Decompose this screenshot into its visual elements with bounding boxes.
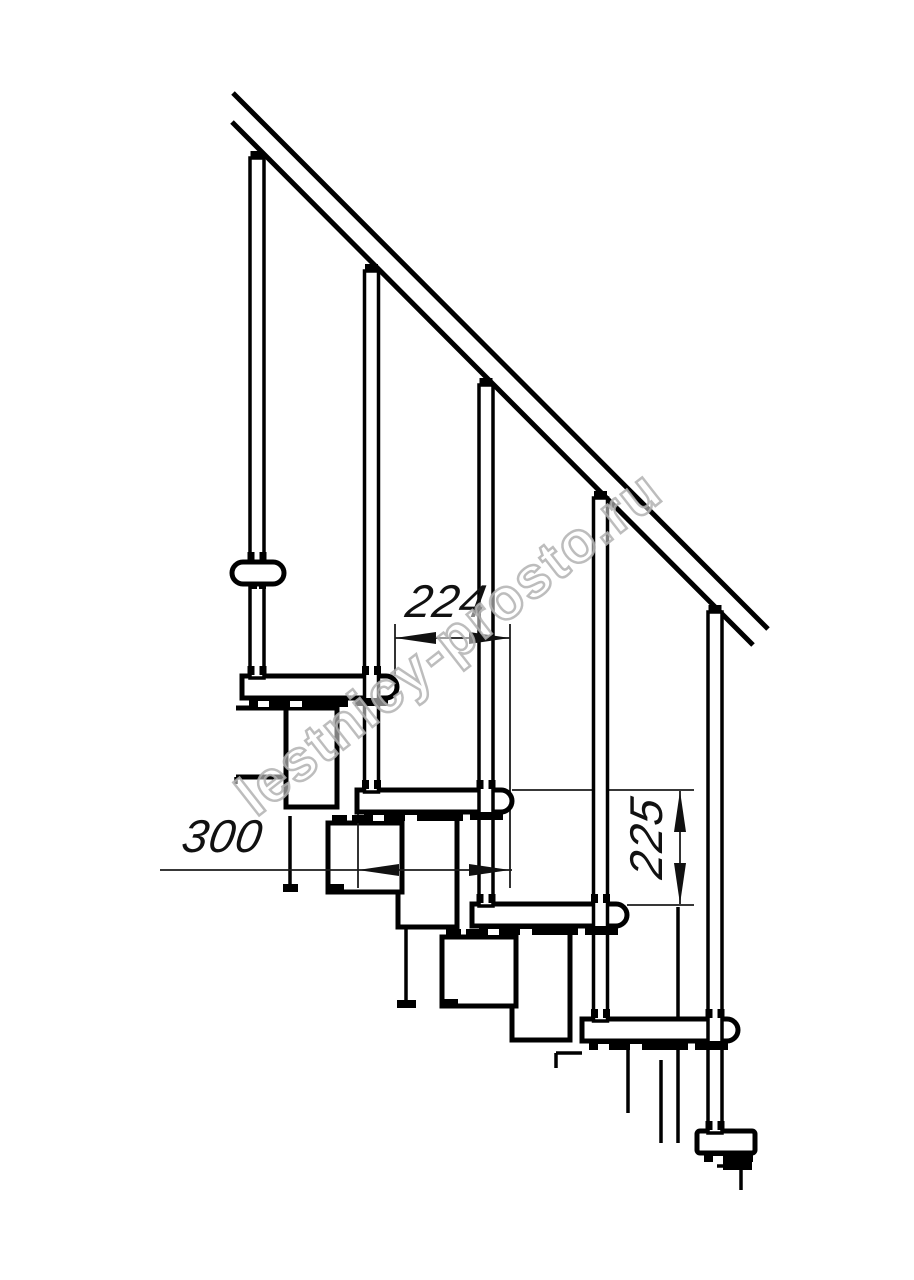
dimension-label-rise: 225 [620,793,672,883]
collar [591,894,610,903]
collar [706,1009,725,1018]
staircase-technical-drawing: 224 300 225 [0,0,914,1280]
handrail-bracket [232,562,284,589]
baluster-1 [250,151,264,678]
tread-5-partial [697,1131,755,1153]
collar [706,1121,725,1130]
collar [477,780,496,789]
module-box-3 [442,937,516,1006]
module-box-2 [328,823,402,892]
drawing-canvas: 224 300 225 [0,0,914,1280]
collar [362,780,381,789]
baluster-5 [708,605,722,1133]
dimension-label-depth: 300 [178,810,267,862]
baluster-4 [594,491,608,1021]
collar [591,1009,610,1018]
connector-module-3 [512,927,570,1040]
collar [248,666,267,675]
collar [477,894,496,903]
